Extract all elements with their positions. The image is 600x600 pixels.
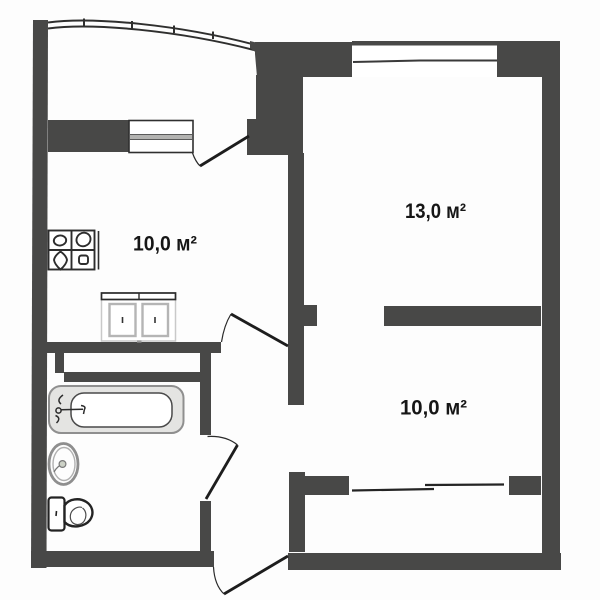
- svg-text:10,0 м²: 10,0 м²: [133, 233, 197, 256]
- svg-text:13,0 м²: 13,0 м²: [405, 200, 466, 223]
- svg-text:10,0 м²: 10,0 м²: [400, 397, 467, 420]
